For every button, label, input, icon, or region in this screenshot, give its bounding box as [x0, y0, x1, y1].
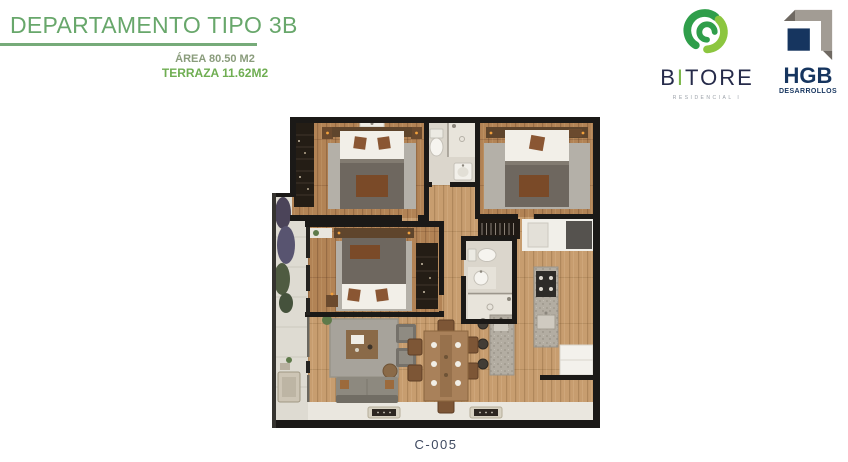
- floor-plan-image: [272, 117, 600, 428]
- hgb-wordmark: HGB: [772, 66, 844, 87]
- terrace-value: TERRAZA 11.62M2: [130, 66, 300, 80]
- area-info: ÁREA 80.50 M2 TERRAZA 11.62M2: [130, 53, 300, 81]
- terrace: [274, 195, 308, 422]
- title-underline: [0, 43, 257, 46]
- page-title: DEPARTAMENTO TIPO 3B: [10, 12, 298, 39]
- bitore-leaf-icon: [681, 5, 733, 59]
- brochure-page: { "page": { "background": "#ffffff" }, "…: [0, 0, 848, 462]
- hgb-logo: HGB DESARROLLOS: [772, 8, 844, 95]
- bitore-wordmark: BITORE: [652, 65, 762, 91]
- area-value: ÁREA 80.50 M2: [130, 53, 300, 66]
- bitore-logo: BITORE RESIDENCIAL I: [652, 5, 762, 101]
- hgb-tagline: DESARROLLOS: [772, 88, 844, 95]
- bedroom-1: [294, 120, 422, 209]
- hgb-corner-icon: [780, 8, 836, 60]
- bitore-tagline: RESIDENCIAL I: [652, 95, 762, 101]
- unit-label: C-005: [272, 437, 600, 452]
